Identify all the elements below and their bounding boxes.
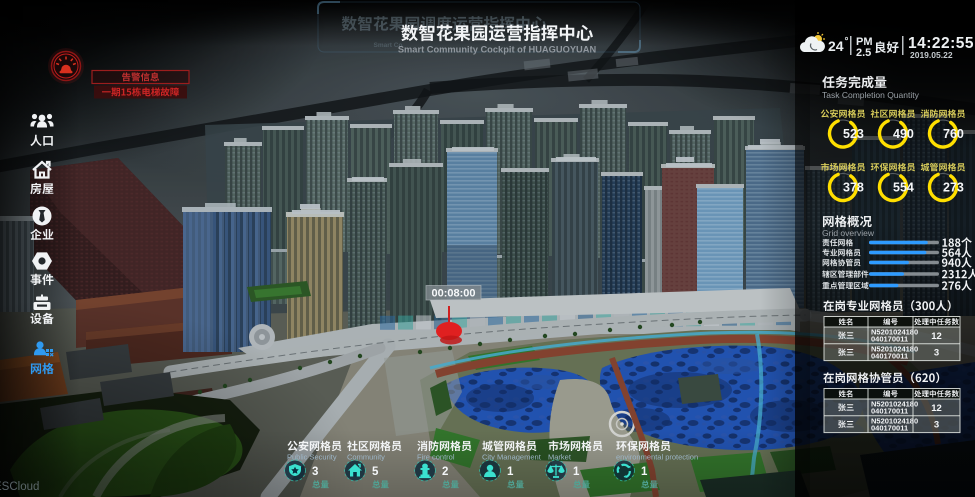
svg-text:760: 760 <box>943 127 964 141</box>
svg-text:523: 523 <box>843 127 864 141</box>
svg-text:2.5: 2.5 <box>856 47 871 59</box>
svg-text:Task Completion Quantity: Task Completion Quantity <box>822 90 920 100</box>
svg-text:Smart Community Cockpit of HUA: Smart Community Cockpit of HUAGUOYUAN <box>398 45 597 55</box>
svg-text:1: 1 <box>573 466 580 478</box>
svg-text:2: 2 <box>442 466 448 478</box>
svg-text:040170011: 040170011 <box>871 351 908 360</box>
svg-text:554: 554 <box>893 180 914 194</box>
svg-text:ESCloud: ESCloud <box>0 481 39 493</box>
svg-text:Grid overview: Grid overview <box>822 228 875 238</box>
svg-text:00:08:00: 00:08:00 <box>431 288 475 300</box>
svg-text:12: 12 <box>931 403 942 414</box>
svg-text:12: 12 <box>931 331 942 342</box>
svg-text:3: 3 <box>934 348 939 359</box>
svg-text:environmental protection: environmental protection <box>616 453 698 462</box>
svg-text:5: 5 <box>372 466 379 478</box>
svg-text:040170011: 040170011 <box>871 407 908 416</box>
svg-text:3: 3 <box>312 466 318 478</box>
svg-text:3: 3 <box>934 420 939 431</box>
svg-text:040170011: 040170011 <box>871 423 908 432</box>
svg-text:490: 490 <box>893 127 914 141</box>
svg-text:1: 1 <box>641 466 648 478</box>
svg-text:2019.05.22: 2019.05.22 <box>910 50 953 60</box>
svg-text:378: 378 <box>843 180 864 194</box>
svg-text:273: 273 <box>943 180 964 194</box>
svg-text:24: 24 <box>828 38 844 54</box>
svg-text:Market: Market <box>548 453 572 462</box>
svg-text:Public Security: Public Security <box>287 453 337 462</box>
svg-text:1: 1 <box>507 466 514 478</box>
svg-text:040170011: 040170011 <box>871 335 908 344</box>
svg-text:°: ° <box>845 36 849 47</box>
